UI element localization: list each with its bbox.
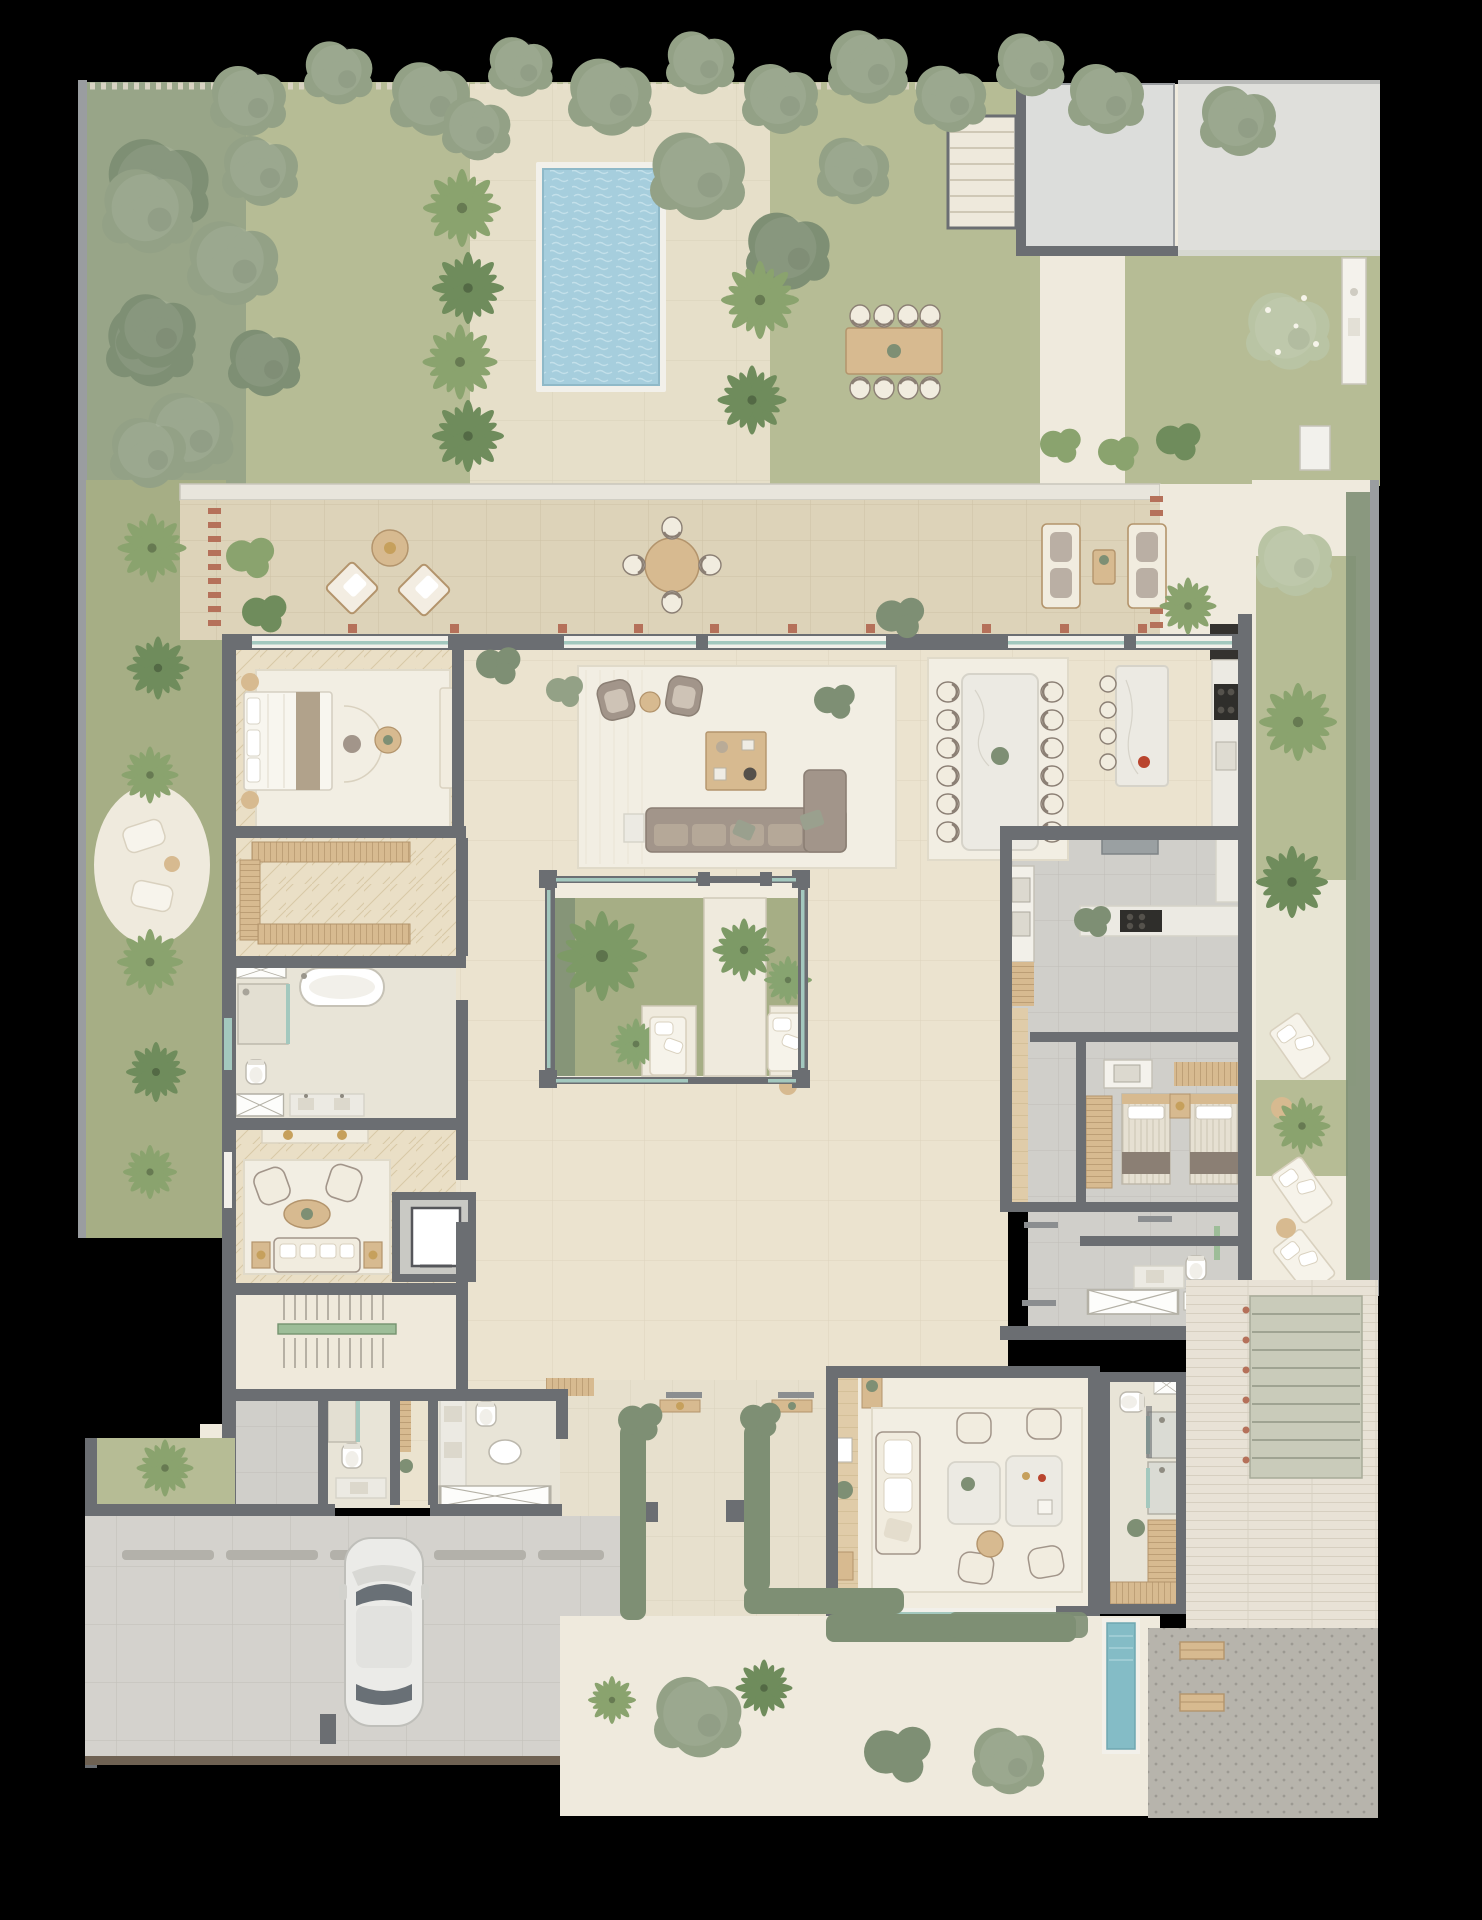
kitchen-sink bbox=[1216, 742, 1236, 770]
nightstand bbox=[241, 791, 259, 809]
toilet bbox=[476, 1402, 496, 1426]
outdoor-kitchen-counter bbox=[1342, 258, 1366, 384]
east-hedge bbox=[1346, 492, 1370, 1292]
master-bed bbox=[244, 692, 332, 790]
lounge-coffee-table bbox=[1006, 1456, 1062, 1526]
toilet bbox=[246, 1060, 266, 1084]
cooktop bbox=[1214, 684, 1238, 720]
equipment-pad bbox=[1300, 426, 1330, 470]
stool bbox=[1100, 702, 1116, 718]
car-mirror bbox=[421, 1584, 429, 1600]
staff-bed bbox=[1190, 1094, 1238, 1184]
tub-faucet bbox=[301, 973, 307, 979]
floor-plan-svg bbox=[0, 0, 1482, 1920]
patio-hedge bbox=[744, 1424, 770, 1592]
staff-closet bbox=[1086, 1096, 1112, 1188]
round-tray-table bbox=[977, 1531, 1003, 1557]
gallery-art bbox=[836, 1438, 852, 1462]
skylight bbox=[1088, 1290, 1178, 1314]
skylight bbox=[236, 1094, 284, 1116]
hall-bench bbox=[400, 1400, 411, 1452]
north-terrace bbox=[180, 484, 1252, 640]
service-cooktop bbox=[1120, 910, 1162, 932]
terrace-parapet bbox=[180, 484, 1160, 500]
car-mirror bbox=[339, 1584, 347, 1600]
toilet bbox=[1120, 1392, 1144, 1412]
basin bbox=[489, 1440, 521, 1464]
elevator-cab bbox=[412, 1208, 460, 1266]
central-courtyard bbox=[545, 876, 812, 1095]
shower bbox=[328, 1396, 356, 1442]
fruit-bowl bbox=[1138, 756, 1150, 768]
laundry-sink bbox=[1114, 1065, 1140, 1082]
east-side-table bbox=[1276, 1218, 1296, 1238]
courtyard-walk-center bbox=[704, 898, 766, 1076]
south-garden-ground bbox=[560, 1616, 1160, 1816]
closet-rail bbox=[240, 860, 260, 940]
lounge-sofa bbox=[876, 1432, 920, 1554]
decor-box bbox=[1038, 1500, 1052, 1514]
toilet bbox=[1186, 1256, 1206, 1280]
west-window bbox=[224, 1152, 232, 1208]
centerpiece-plant bbox=[991, 747, 1009, 765]
shower bbox=[238, 984, 290, 1044]
coffee-table bbox=[706, 732, 766, 790]
exterior-stair bbox=[948, 116, 1016, 228]
stool bbox=[1100, 676, 1116, 692]
courtyard-daybed bbox=[650, 1017, 686, 1075]
lounge-armchair bbox=[1027, 1544, 1066, 1579]
closet-rail bbox=[252, 842, 410, 862]
plant bbox=[399, 1459, 413, 1473]
pouf bbox=[343, 735, 361, 753]
staff-bed bbox=[1122, 1094, 1170, 1184]
stool bbox=[1100, 754, 1116, 770]
lounge-coffee-table bbox=[948, 1462, 1000, 1524]
master-bedroom bbox=[241, 670, 459, 830]
terrace-dining-table bbox=[645, 538, 699, 592]
shower-stall bbox=[1146, 1462, 1178, 1514]
spa-plant bbox=[1127, 1519, 1145, 1537]
bed-throw bbox=[296, 692, 320, 790]
stool bbox=[1100, 728, 1116, 744]
vanity bbox=[290, 1094, 364, 1116]
vestibule-floor bbox=[228, 1392, 324, 1508]
nightstand bbox=[241, 673, 259, 691]
main-stair bbox=[278, 1292, 396, 1368]
swimming-pool bbox=[543, 169, 659, 385]
east-boundary-wall bbox=[1370, 480, 1379, 1296]
patio-hedge bbox=[744, 1588, 904, 1614]
drinks-table bbox=[640, 692, 660, 712]
wood-shelf bbox=[1174, 1062, 1238, 1086]
lamp bbox=[1176, 1102, 1185, 1111]
shower-head bbox=[243, 989, 250, 996]
floor-plan-image bbox=[0, 0, 1482, 1920]
console-table bbox=[262, 1128, 368, 1143]
kitchen-island bbox=[1116, 666, 1168, 786]
plunge-pool bbox=[1102, 1618, 1140, 1754]
shower-glass bbox=[286, 984, 290, 1044]
gallery-basket bbox=[836, 1552, 853, 1580]
stair-glass-rail bbox=[278, 1324, 396, 1334]
west-window bbox=[224, 1018, 232, 1070]
skylight bbox=[440, 1486, 550, 1506]
patio-hedge bbox=[620, 1424, 646, 1620]
spa-deck bbox=[1106, 1582, 1178, 1604]
outdoor-dining bbox=[846, 305, 942, 399]
garden-side-table bbox=[164, 856, 180, 872]
lounge-armchair bbox=[957, 1413, 991, 1443]
courtyard-palm bbox=[713, 919, 776, 982]
west-garden-clearing bbox=[94, 785, 210, 945]
west-boundary-wall bbox=[78, 80, 87, 1238]
toilet bbox=[342, 1444, 362, 1468]
closet-rail bbox=[258, 924, 410, 944]
lounge-armchair bbox=[1027, 1409, 1061, 1439]
marble-side-table bbox=[624, 814, 644, 842]
garage-post bbox=[320, 1714, 336, 1744]
car bbox=[339, 1538, 429, 1726]
southeast-stair bbox=[1243, 1296, 1363, 1478]
tv-console bbox=[440, 688, 454, 788]
courtyard-palm bbox=[557, 911, 647, 1001]
